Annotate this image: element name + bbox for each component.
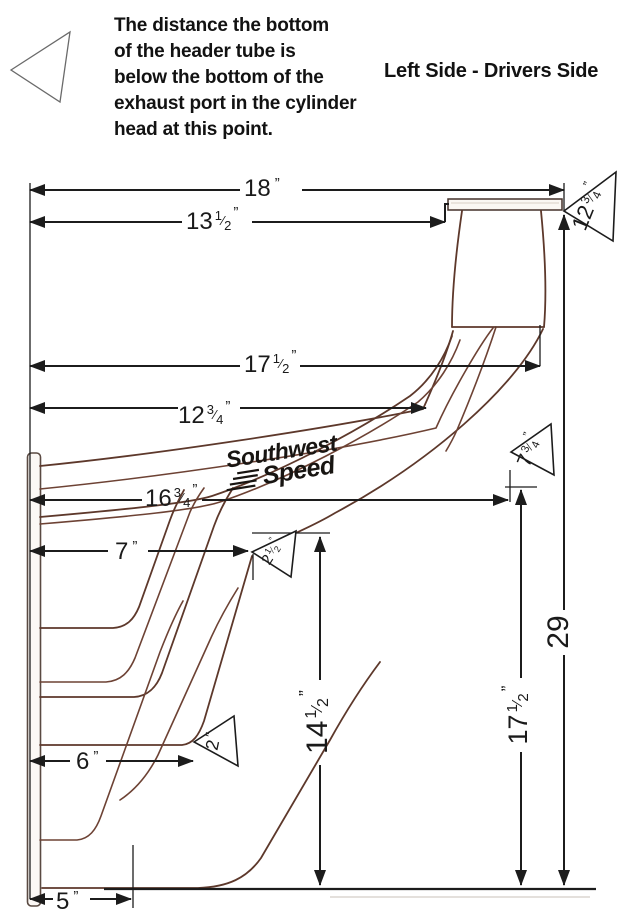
svg-text:141⁄2”: 141⁄2”: [296, 690, 334, 754]
svg-text:131⁄2”: 131⁄2”: [186, 204, 238, 235]
note-line: of the header tube is: [114, 39, 357, 65]
note-paragraph: The distance the bottom of the header tu…: [114, 13, 357, 143]
callout-2: 2″: [194, 716, 238, 766]
tube-line: [40, 601, 183, 840]
dimension-14-1-2in-vertical: 141⁄2”: [296, 537, 334, 885]
svg-text:171⁄2”: 171⁄2”: [498, 685, 533, 744]
callout-triangle-legend: [11, 32, 70, 102]
collector-right-edge: [541, 211, 545, 327]
tube-line: [120, 588, 238, 800]
svg-text:29: 29: [542, 615, 575, 648]
tube-line: [40, 488, 233, 697]
note-line: head at this point.: [114, 117, 357, 143]
note-line: below the bottom of the: [114, 65, 357, 91]
tube-line: [40, 556, 252, 745]
page-title: Left Side - Drivers Side: [384, 60, 598, 83]
logo-speed-lines: [224, 470, 261, 490]
dimension-5in: 5”: [30, 888, 131, 915]
collector-flange: [448, 199, 562, 210]
dimension-17-1-2in-vertical: 171⁄2”: [498, 490, 533, 885]
dimension-7in: 7”: [30, 538, 248, 565]
collector-left-edge: [452, 211, 462, 327]
callout-7-3-4: 73⁄4”: [509, 424, 554, 475]
svg-text:163⁄4”: 163⁄4”: [145, 481, 197, 512]
svg-text:171⁄2”: 171⁄2”: [244, 347, 296, 378]
dimension-29-vertical: 29: [542, 215, 575, 885]
dimension-17-1-2in-top: 171⁄2”: [30, 325, 540, 378]
note-line: The distance the bottom: [114, 13, 357, 39]
callout-12-3-4: 123⁄4”: [564, 172, 616, 241]
callout-2-1-2: 21⁄2”: [252, 531, 296, 577]
dimension-6in: 6”: [30, 748, 193, 775]
svg-text:6”: 6”: [76, 748, 98, 775]
svg-text:18”: 18”: [244, 175, 280, 202]
dimension-18in: 18”: [30, 175, 564, 202]
svg-text:7”: 7”: [115, 538, 137, 565]
dimension-13-1-2in: 131⁄2”: [30, 204, 449, 235]
svg-text:123⁄4”: 123⁄4”: [178, 398, 230, 429]
note-line: exhaust port in the cylinder: [114, 91, 357, 117]
header-diagram-page: 18” 131⁄2” 171⁄2” 123⁄4” 163⁄4”: [0, 0, 621, 916]
svg-text:5”: 5”: [56, 888, 78, 915]
